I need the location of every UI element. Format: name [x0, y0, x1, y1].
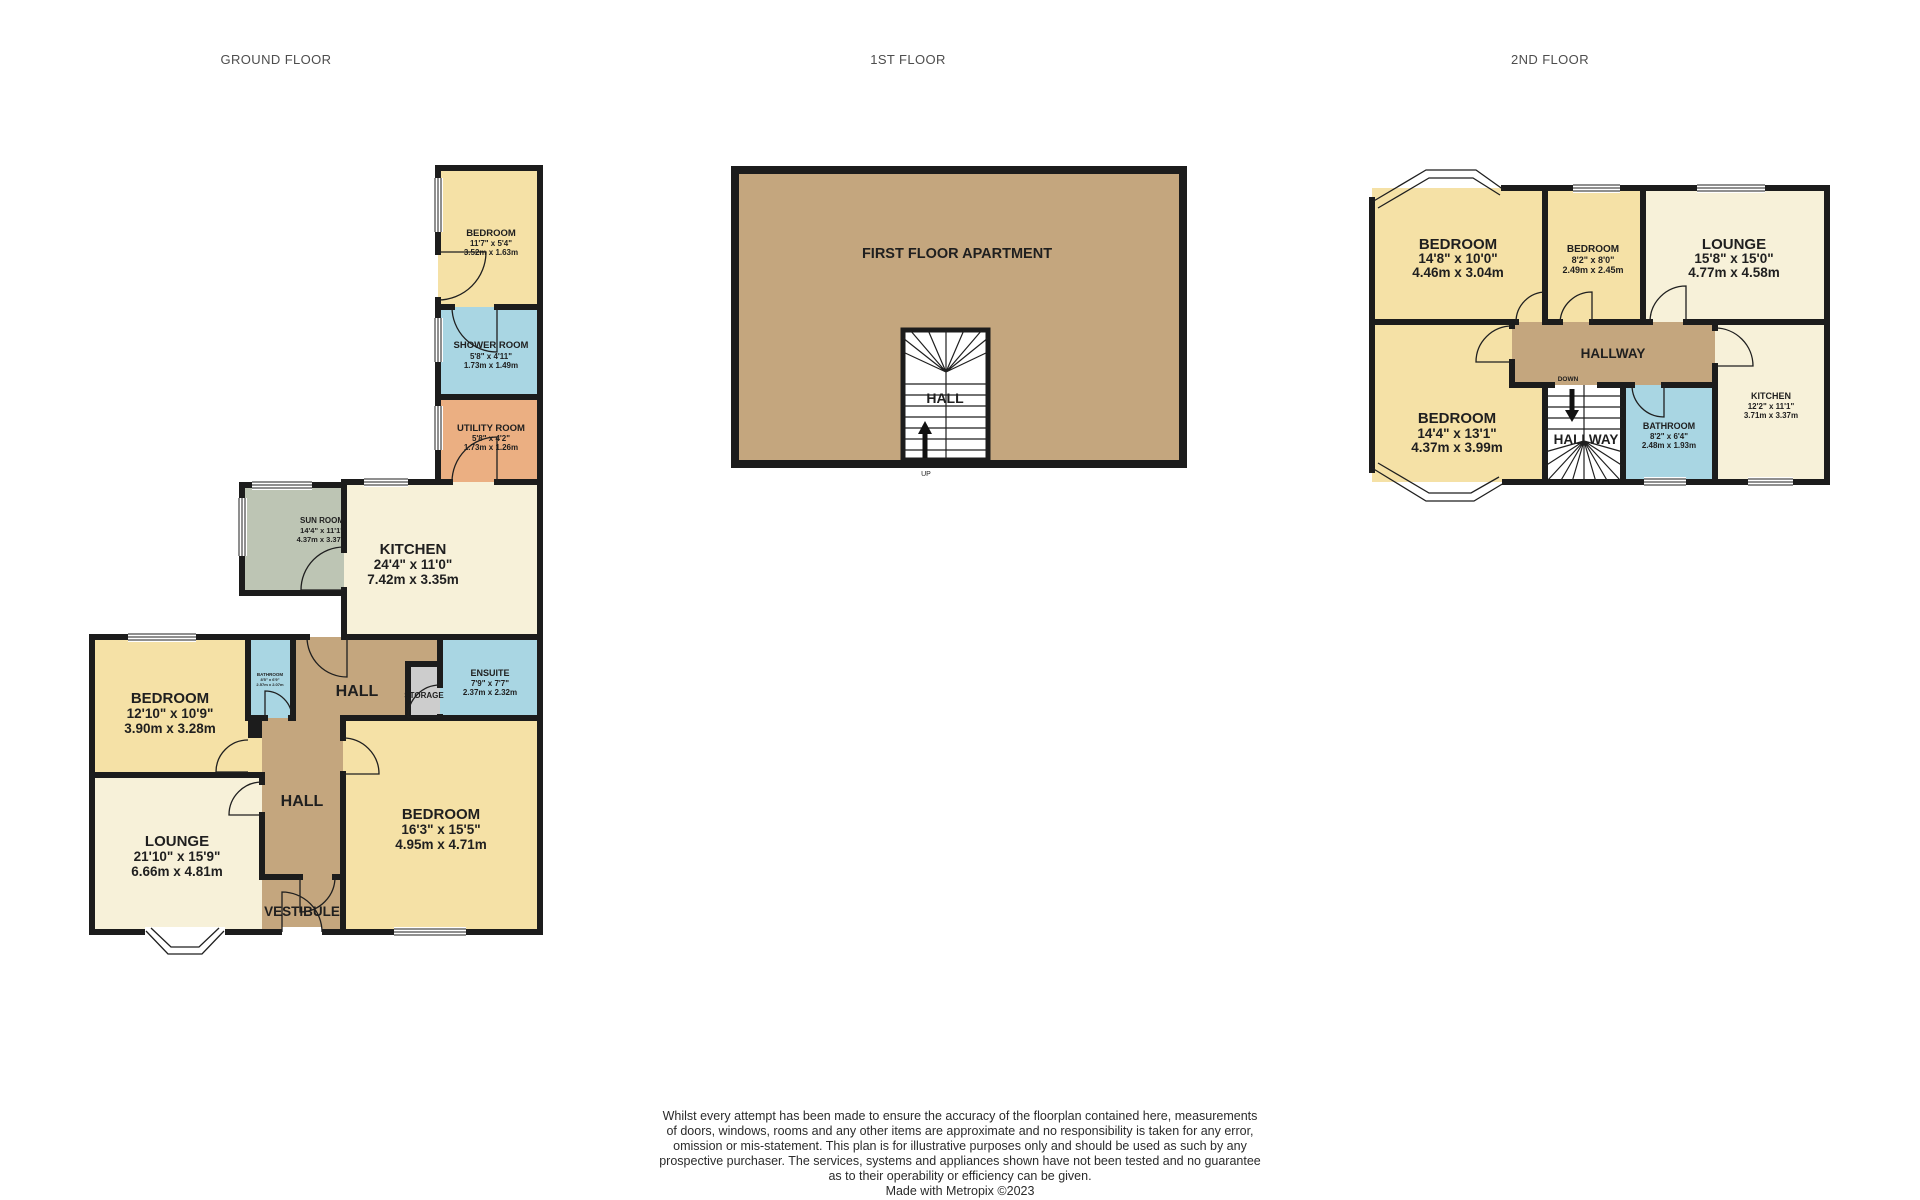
lounge-second-dims-metric: 4.77m x 4.58m: [1688, 265, 1780, 280]
lounge-label: LOUNGE: [145, 833, 209, 850]
bedroom-main-label: BEDROOM: [402, 806, 480, 823]
lounge-second-dims-imperial: 15'8" x 15'0": [1694, 251, 1773, 266]
bedroom-left-dims-imperial: 12'10" x 10'9": [127, 706, 214, 721]
bedroom-bottom-left-dims-metric: 4.37m x 3.99m: [1411, 440, 1503, 455]
bedroom-top-left-dims-metric: 4.46m x 3.04m: [1412, 265, 1504, 280]
hallway-stairs-label: HALLWAY: [1554, 432, 1619, 447]
disclaimer-line: omission or mis-statement. This plan is …: [673, 1139, 1247, 1153]
bedroom-top-dims-metric: 3.52m x 1.63m: [464, 248, 518, 257]
bedroom-bottom-left-label: BEDROOM: [1418, 410, 1496, 427]
bedroom-top-dims-imperial: 11'7" x 5'4": [470, 239, 512, 248]
hall-upper-label: HALL: [336, 683, 379, 700]
room-bedroom-bottom-left: [1372, 322, 1512, 482]
vestibule-label: VESTIBULE: [264, 904, 340, 919]
second-floor-header: 2ND FLOOR: [1511, 52, 1589, 67]
doorway-patch: [248, 738, 262, 772]
bedroom-top-middle-dims-imperial: 8'2" x 8'0": [1572, 255, 1615, 265]
bedroom-top-label: BEDROOM: [466, 228, 516, 239]
utility-room-label: UTILITY ROOM: [457, 423, 525, 434]
bathroom-second-label: BATHROOM: [1643, 421, 1695, 431]
ensuite-dims-metric: 2.37m x 2.32m: [463, 688, 517, 697]
first-floor-header: 1ST FLOOR: [870, 52, 946, 67]
first-floor-apartment-label: FIRST FLOOR APARTMENT: [862, 246, 1052, 262]
bedroom-top-middle-label: BEDROOM: [1567, 244, 1619, 255]
bathroom-ground-dims-metric: 2.57m x 2.07m: [256, 682, 284, 687]
bedroom-left-dims-metric: 3.90m x 3.28m: [124, 721, 216, 736]
kitchen-second-dims-imperial: 12'2" x 11'1": [1748, 402, 1795, 411]
ensuite-dims-imperial: 7'9" x 7'7": [471, 679, 509, 688]
bedroom-top-middle-dims-metric: 2.49m x 2.45m: [1562, 265, 1623, 275]
up-label: UP: [921, 471, 931, 478]
entrance-door-gap: [282, 927, 322, 937]
lounge-dims-metric: 6.66m x 4.81m: [131, 864, 223, 879]
kitchen-second-dims-metric: 3.71m x 3.37m: [1744, 411, 1798, 420]
shower-room-label: SHOWER ROOM: [454, 340, 529, 351]
first-floor-hall-label: HALL: [926, 390, 964, 406]
utility-room-dims-imperial: 5'8" x 4'2": [472, 434, 510, 443]
bedroom-main-dims-imperial: 16'3" x 15'5": [401, 822, 480, 837]
kitchen-second-label: KITCHEN: [1751, 391, 1791, 401]
disclaimer-line: as to their operability or efficiency ca…: [828, 1169, 1091, 1183]
utility-room-dims-metric: 1.73m x 1.26m: [464, 443, 518, 452]
bathroom-second-dims-imperial: 8'2" x 6'4": [1650, 432, 1688, 441]
disclaimer-line: of doors, windows, rooms and any other i…: [666, 1124, 1253, 1138]
kitchen-label: KITCHEN: [380, 541, 447, 558]
hall-lower-label: HALL: [281, 793, 324, 810]
sun-room-label: SUN ROOM: [300, 516, 344, 525]
bedroom-top-left-dims-imperial: 14'8" x 10'0": [1418, 251, 1497, 266]
bedroom-main-dims-metric: 4.95m x 4.71m: [395, 837, 487, 852]
shower-room-dims-metric: 1.73m x 1.49m: [464, 361, 518, 370]
thick-wall-upper: [248, 715, 262, 738]
kitchen-dims-metric: 7.42m x 3.35m: [367, 572, 459, 587]
bay-window-gap: [145, 927, 225, 937]
lounge-dims-imperial: 21'10" x 15'9": [134, 849, 221, 864]
kitchen-dims-imperial: 24'4" x 11'0": [374, 557, 453, 572]
disclaimer-line: Whilst every attempt has been made to en…: [663, 1109, 1258, 1123]
second-floor-plan: BEDROOM 14'8" x 10'0" 4.46m x 3.04m BEDR…: [1372, 170, 1827, 501]
floorplan-canvas: GROUND FLOOR 1ST FLOOR 2ND FLOOR SUN ROO…: [0, 0, 1920, 1200]
ground-floor-plan: SUN ROOM 14'4" x 11'1" 4.37m x 3.37m STO…: [92, 168, 540, 954]
ensuite-label: ENSUITE: [470, 668, 509, 678]
disclaimer: Whilst every attempt has been made to en…: [659, 1109, 1261, 1198]
down-label: DOWN: [1558, 376, 1579, 383]
bathroom-second-dims-metric: 2.48m x 1.93m: [1642, 441, 1696, 450]
first-floor-plan: FIRST FLOOR APARTMENT HALL UP: [735, 170, 1183, 478]
bedroom-bottom-left-dims-imperial: 14'4" x 13'1": [1417, 426, 1496, 441]
shower-room-dims-imperial: 5'8" x 4'11": [470, 352, 512, 361]
hallway-label: HALLWAY: [1581, 346, 1646, 361]
sun-room-dims-metric: 4.37m x 3.37m: [297, 535, 348, 544]
ground-floor-header: GROUND FLOOR: [221, 52, 332, 67]
bedroom-left-label: BEDROOM: [131, 690, 209, 707]
credit-line: Made with Metropix ©2023: [886, 1184, 1035, 1198]
thick-wall-lower: [248, 772, 262, 778]
room-bedroom-bottom-left-ext: [1512, 385, 1545, 482]
disclaimer-line: prospective purchaser. The services, sys…: [659, 1154, 1261, 1168]
sun-room-dims-imperial: 14'4" x 11'1": [300, 526, 344, 535]
